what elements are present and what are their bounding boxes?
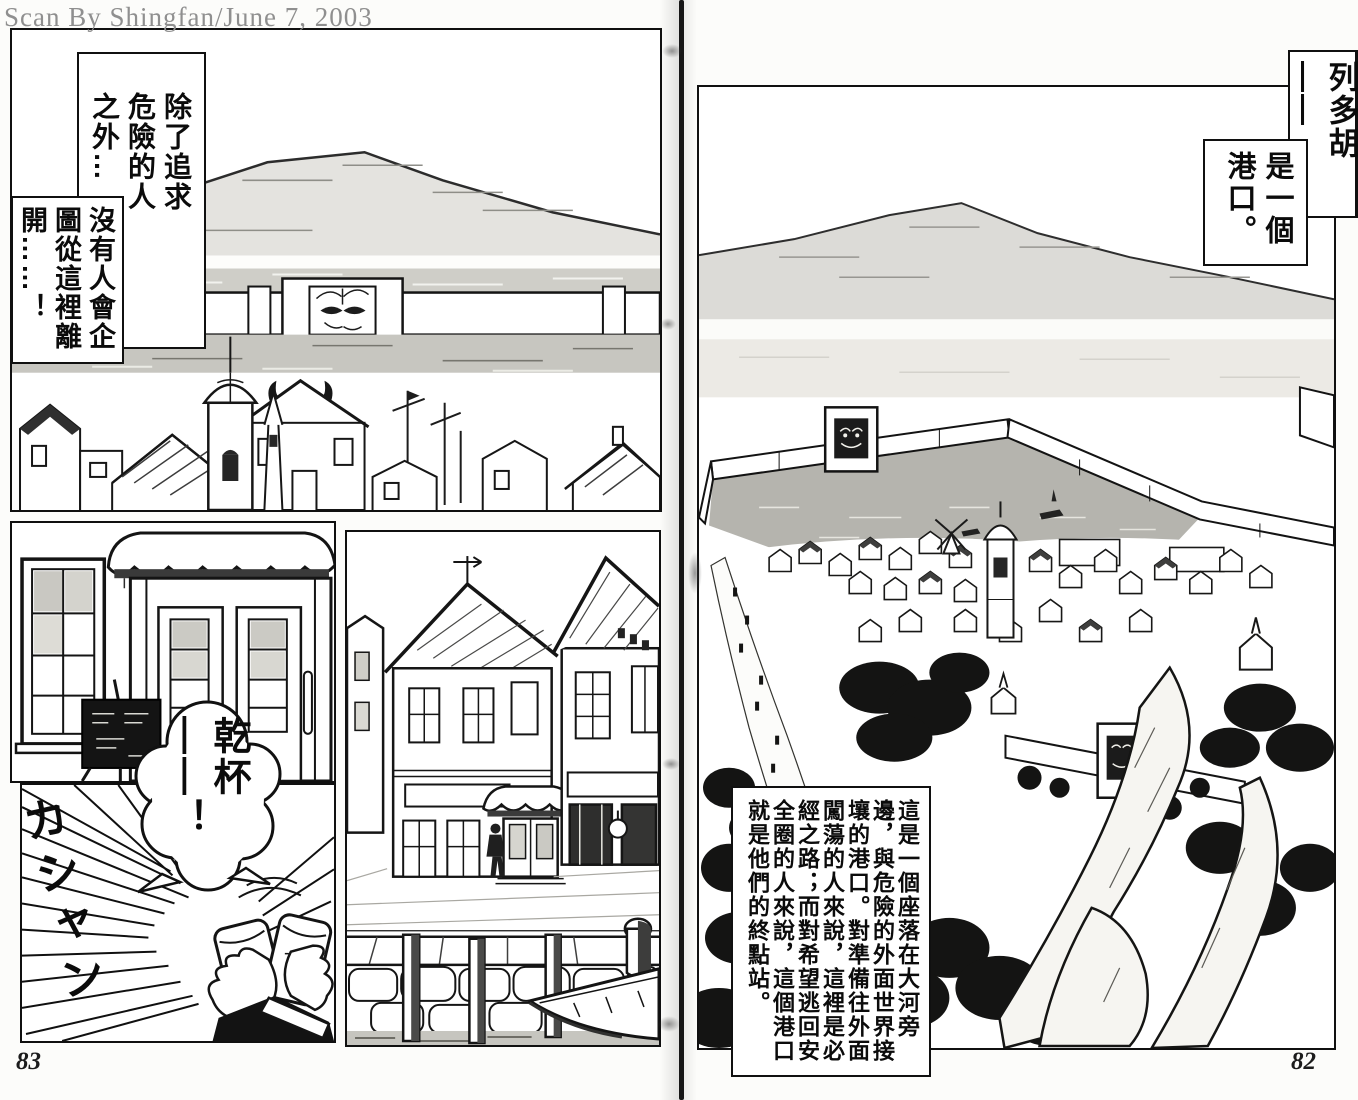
manga-spread: Scan By Shingfan/June 7, 2003 <box>0 0 1358 1100</box>
narration-box-2: 沒有人會企圖從這裡離開……！ <box>11 196 124 364</box>
binding-line <box>679 0 684 1100</box>
speech-bubble-text: 乾杯——！ <box>165 716 249 896</box>
subtitle-text: 是一個港口。 <box>1220 151 1296 253</box>
page-number-right: 82 <box>1291 1048 1316 1076</box>
narration-text-right: 這是一個座落在大河旁邊，與危險的外面世界接壤的港口。對準備往外面闖蕩的人來說，這… <box>745 799 920 1065</box>
page-number-left: 83 <box>16 1048 41 1076</box>
narration-text-2: 沒有人會企圖從這裡離開……！ <box>15 206 117 358</box>
subtitle-box: 是一個港口。 <box>1203 139 1308 266</box>
speech-bubble: 乾杯——！ <box>128 694 286 906</box>
sea-gate-emblem <box>834 418 868 458</box>
narration-box-right: 這是一個座落在大河旁邊，與危險的外面世界接壤的港口。對準備往外面闖蕩的人來說，這… <box>731 786 931 1077</box>
street-dock-art <box>347 532 659 1045</box>
scan-watermark: Scan By Shingfan/June 7, 2003 <box>4 2 373 33</box>
panel-street-dock <box>345 530 661 1047</box>
awning <box>108 533 334 575</box>
spiral-binding <box>656 0 704 1100</box>
